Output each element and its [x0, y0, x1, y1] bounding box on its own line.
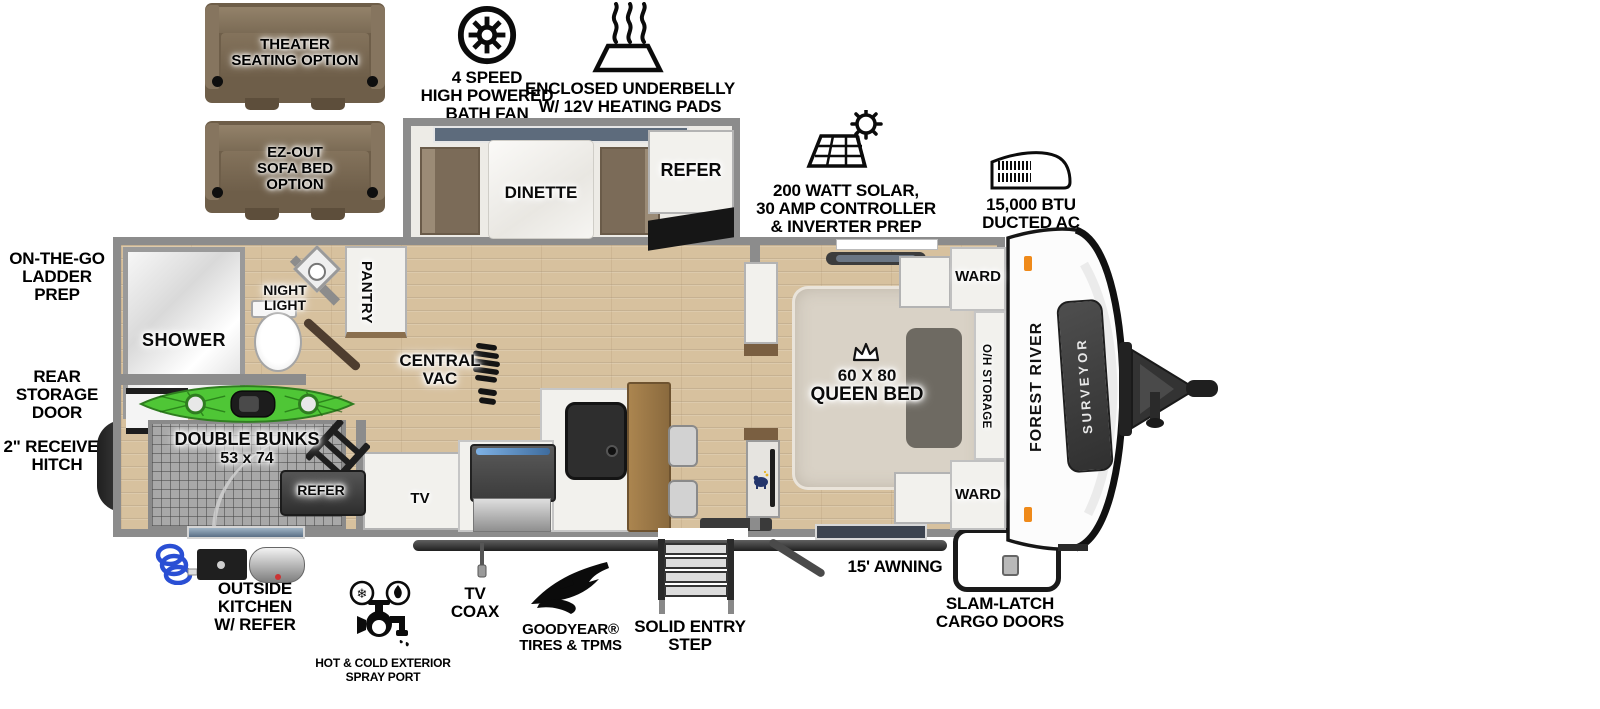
rear-storage-door-label: REAR STORAGE DOOR: [0, 368, 114, 422]
cabinet-shelf-bottom: [744, 428, 778, 440]
tv-label: TV: [390, 490, 450, 507]
goodyear-label: GOODYEAR® TIRES & TPMS: [498, 622, 643, 654]
hall-cabinet: [744, 262, 778, 344]
floorplan-canvas: THEATER SEATING OPTION EZ-OUT SOFA BED O…: [0, 0, 1600, 709]
awning-label: 15' AWNING: [835, 558, 955, 576]
entry-opening: [658, 528, 748, 539]
cargo-door-latch: [1002, 555, 1019, 576]
hitch-assembly: [1119, 342, 1218, 436]
night-light-label: NIGHT LIGHT: [243, 283, 327, 313]
bath-fan-icon: [456, 4, 518, 66]
entry-step-label: SOLID ENTRY STEP: [625, 618, 755, 654]
spray-port-icon: ❄: [343, 580, 423, 654]
goodyear-wingfoot-logo: [525, 558, 613, 620]
pantry: [345, 246, 407, 338]
pantry-label: PANTRY: [358, 252, 375, 332]
double-bunks-label: DOUBLE BUNKS 53 x 74: [152, 430, 342, 468]
dinette-label: DINETTE: [495, 183, 587, 203]
cabinet-shelf-top: [744, 344, 778, 356]
door-window-strip: [770, 449, 775, 507]
shower-label: SHOWER: [128, 330, 240, 351]
solar-prep-icon: [803, 110, 889, 182]
oh-storage-label: O/H STORAGE: [980, 318, 992, 454]
stool-1: [668, 425, 698, 467]
stove: [470, 444, 556, 502]
kitchen-sink: [565, 402, 627, 480]
entry-steps: [650, 538, 742, 618]
ez-out-sofa-bed-option-graphic: EZ-OUT SOFA BED OPTION: [205, 121, 385, 213]
theater-seating-option-graphic: THEATER SEATING OPTION: [205, 3, 385, 103]
ducted-ac-icon: [986, 146, 1074, 194]
outside-kitchen-box: [197, 549, 247, 580]
queen-bed-label: 60 X 80 QUEEN BED: [798, 366, 936, 404]
forest-river-wordmark: FOREST RIVER: [1028, 292, 1046, 482]
water-heater-tank: [249, 547, 305, 583]
dinette-bench-left: [420, 147, 480, 235]
nightstand-bottom: [894, 472, 952, 524]
coiled-hose: [150, 541, 198, 585]
bedroom-window-top: [836, 239, 938, 250]
toilet: [254, 312, 302, 372]
ward-top-label: WARD: [946, 268, 1010, 285]
bear-decal: [752, 470, 770, 490]
heating-pads-icon: [590, 2, 666, 74]
marker-light-top: [1024, 256, 1032, 271]
ward-bottom-label: WARD: [946, 486, 1010, 503]
island-counter: [627, 382, 671, 532]
marker-light-bottom: [1024, 507, 1032, 522]
underbelly-label: ENCLOSED UNDERBELLY W/ 12V HEATING PADS: [520, 80, 740, 116]
entry-door-leaf: [746, 440, 780, 518]
central-vac-label: CENTRAL VAC: [394, 352, 486, 388]
bedroom-window-bottom: [815, 524, 927, 540]
kayak: [138, 384, 356, 424]
ez-out-sofa-bed-label: EZ-OUT SOFA BED OPTION: [205, 145, 385, 193]
slam-latch-label: SLAM-LATCH CARGO DOORS: [922, 595, 1078, 631]
oven: [473, 498, 551, 532]
nightstand-top: [899, 256, 951, 308]
tv-coax-connector: [475, 543, 489, 581]
outside-kitchen-label: OUTSIDE KITCHEN W/ REFER: [185, 580, 325, 634]
bunk-refer-label: REFER: [282, 482, 360, 498]
stool-2: [668, 480, 698, 518]
tv-coax-label: TV COAX: [435, 585, 515, 621]
crown-icon: [850, 340, 882, 364]
outside-kitchen-griddle: [187, 526, 305, 539]
svg-text:❄: ❄: [357, 587, 368, 602]
surveyor-wordmark: SURVEYOR: [1072, 312, 1097, 461]
theater-seating-label: THEATER SEATING OPTION: [205, 37, 385, 69]
refer-label: REFER: [650, 160, 732, 181]
spray-port-label: HOT & COLD EXTERIOR SPRAY PORT: [288, 656, 478, 684]
solar-prep-label: 200 WATT SOLAR, 30 AMP CONTROLLER & INVE…: [748, 182, 944, 236]
ladder-prep-label: ON-THE-GO LADDER PREP: [0, 250, 114, 304]
